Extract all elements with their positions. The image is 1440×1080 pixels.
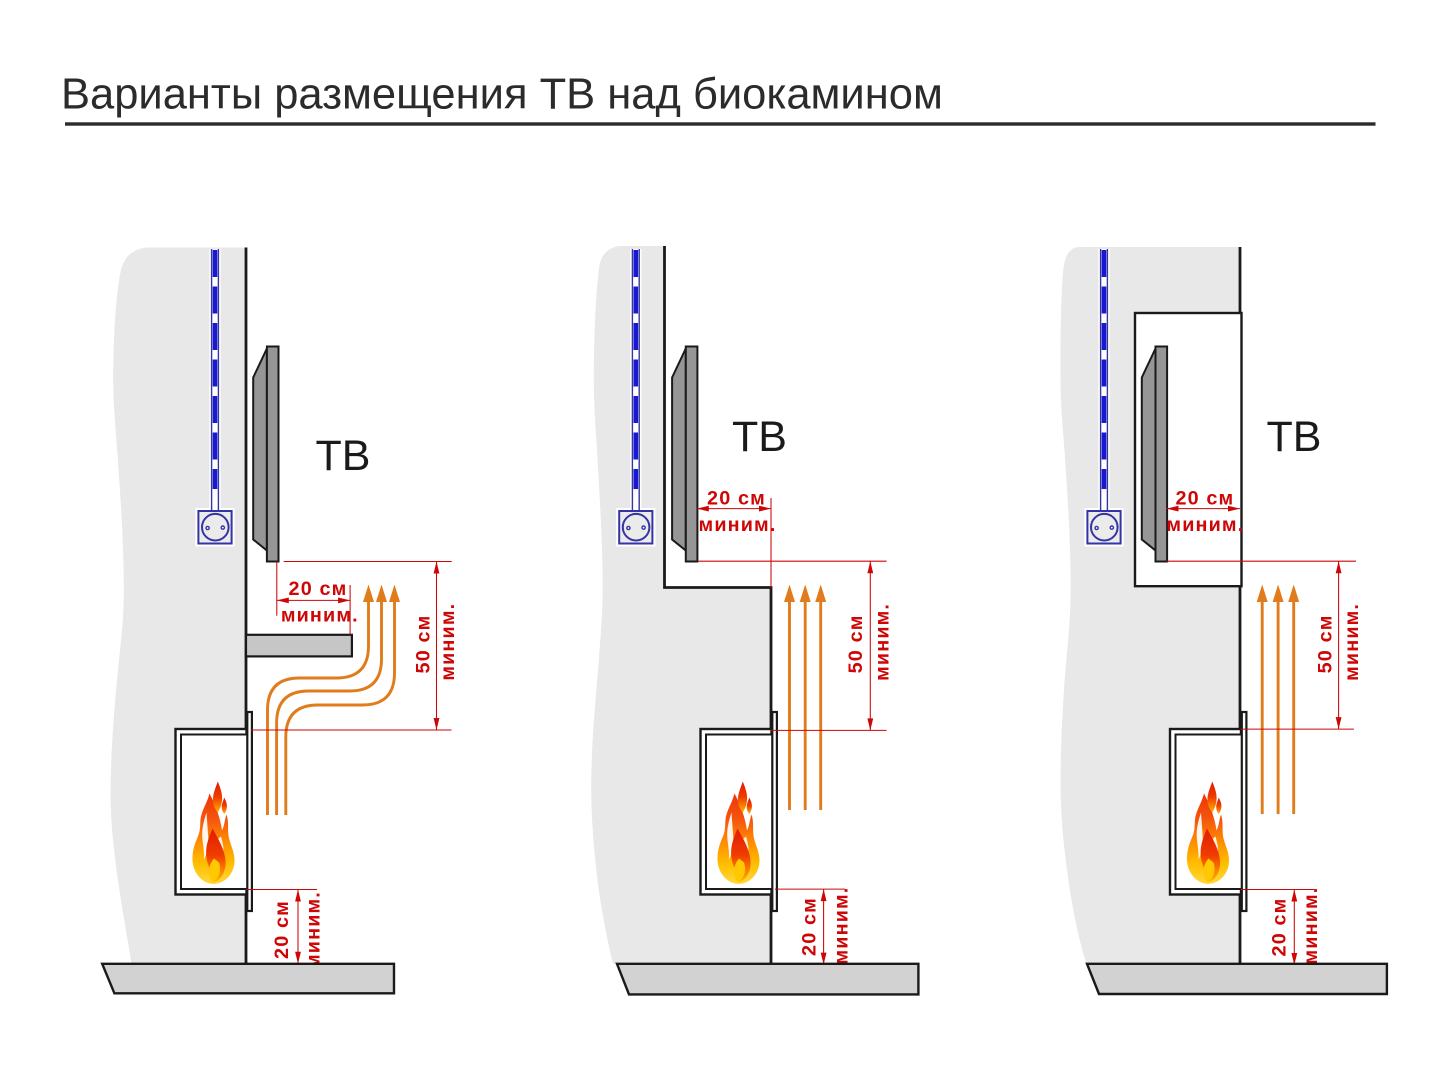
svg-text:миним.: миним. — [281, 604, 359, 626]
svg-text:ТВ: ТВ — [316, 432, 371, 480]
svg-text:миним.: миним. — [1341, 603, 1363, 681]
svg-text:миним.: миним. — [830, 887, 852, 965]
svg-text:50 см: 50 см — [845, 614, 867, 673]
svg-text:50 см: 50 см — [413, 615, 435, 674]
svg-text:20 см: 20 см — [707, 487, 766, 509]
svg-text:20 см: 20 см — [1268, 898, 1290, 957]
svg-text:миним.: миним. — [1166, 514, 1244, 536]
svg-text:миним.: миним. — [699, 514, 777, 536]
svg-text:20 см: 20 см — [271, 900, 293, 959]
svg-text:Варианты размещения ТВ над био: Варианты размещения ТВ над биокамином — [61, 71, 943, 119]
svg-text:миним.: миним. — [303, 891, 325, 969]
svg-text:миним.: миним. — [1300, 887, 1322, 965]
svg-text:ТВ: ТВ — [1267, 413, 1322, 461]
svg-text:ТВ: ТВ — [732, 413, 787, 461]
svg-text:50 см: 50 см — [1314, 614, 1336, 673]
svg-text:20 см: 20 см — [1175, 487, 1234, 509]
svg-text:миним.: миним. — [437, 603, 459, 681]
svg-text:миним.: миним. — [872, 603, 894, 681]
svg-text:20 см: 20 см — [799, 897, 821, 956]
svg-text:20 см: 20 см — [289, 578, 348, 600]
